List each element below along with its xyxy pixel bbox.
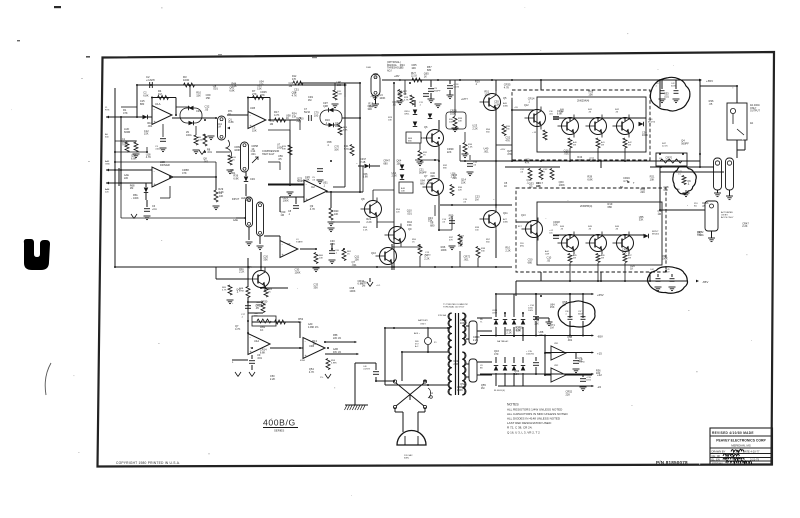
svg-text:680: 680 — [608, 205, 613, 209]
svg-text:47K: 47K — [505, 138, 510, 142]
svg-text:15K: 15K — [196, 93, 201, 97]
svg-text:+15: +15 — [597, 352, 602, 356]
svg-text:.001: .001 — [567, 338, 573, 342]
svg-text:4.7K: 4.7K — [310, 207, 316, 211]
svg-text:COPYRIGHT 1980 PRINTED IN: COPYRIGHT 1980 PRINTED IN U.S.A. — [116, 461, 180, 465]
svg-text:2.2K: 2.2K — [506, 331, 512, 335]
svg-text:1K: 1K — [251, 147, 254, 151]
svg-text:15K: 15K — [461, 180, 466, 184]
svg-text:4.7K: 4.7K — [623, 179, 629, 183]
svg-text:2N6254(4): 2N6254(4) — [577, 99, 589, 103]
svg-text:680: 680 — [140, 102, 145, 106]
svg-text:R 72, C 38, CR 24,: R 72, C 38, CR 24, — [507, 426, 533, 430]
svg-text:22K: 22K — [335, 124, 340, 128]
svg-text:DIV 1%: DIV 1% — [333, 351, 342, 354]
svg-text:5W: 5W — [573, 144, 576, 146]
svg-text:1K: 1K — [424, 74, 427, 78]
svg-text:220 1%: 220 1% — [333, 337, 342, 340]
svg-text:DATE 4-20-77: DATE 4-20-77 — [743, 450, 760, 454]
svg-text:TOROIDAL 120 VOLT: TOROIDAL 120 VOLT — [443, 306, 465, 309]
svg-text:AU: AU — [105, 133, 108, 136]
svg-text:TANT: TANT — [122, 144, 129, 147]
svg-text:100K: 100K — [662, 257, 668, 261]
svg-text:GND: GND — [105, 164, 110, 166]
svg-text:2.2K: 2.2K — [505, 249, 511, 253]
svg-text:10K: 10K — [219, 195, 224, 198]
svg-text:.05: .05 — [400, 66, 404, 70]
svg-text:OUTPUT: OUTPUT — [750, 110, 760, 113]
svg-text:1M: 1M — [562, 303, 566, 307]
svg-text:2.2K: 2.2K — [391, 174, 397, 178]
svg-text:+LPT7: +LPT7 — [461, 99, 469, 101]
svg-text:REVISED 4/10/80 MADE: REVISED 4/10/80 MADE — [712, 431, 754, 435]
svg-text:+CA: +CA — [152, 208, 157, 211]
svg-text:47K: 47K — [449, 240, 453, 242]
svg-text:CH. CK: CH. CK — [712, 454, 721, 458]
svg-text:4080: 4080 — [503, 222, 509, 224]
svg-text:10/25: 10/25 — [586, 379, 592, 381]
svg-text:15K: 15K — [588, 92, 593, 96]
svg-text:22.1K: 22.1K — [411, 76, 417, 78]
svg-text:.05: .05 — [278, 157, 282, 161]
svg-text:4.99K 1%: 4.99K 1% — [308, 326, 319, 329]
svg-text:2.2K: 2.2K — [473, 338, 479, 342]
svg-text:10K: 10K — [334, 147, 339, 151]
svg-text:CR4: CR4 — [250, 178, 255, 181]
svg-text:10K: 10K — [514, 372, 519, 376]
svg-text:15K: 15K — [550, 305, 555, 309]
svg-text:4.7K: 4.7K — [330, 242, 336, 246]
svg-text:1M: 1M — [481, 386, 485, 390]
svg-text:1M: 1M — [550, 326, 554, 330]
svg-text:100K: 100K — [277, 146, 283, 150]
svg-text:100A: 100A — [186, 134, 192, 137]
svg-text:1000: 1000 — [183, 78, 190, 82]
svg-text:2.2K: 2.2K — [246, 198, 252, 202]
svg-text:4Ω: 4Ω — [750, 122, 753, 125]
svg-text:22K: 22K — [452, 176, 457, 180]
svg-text:LAST REF DESIGNATOR USED:: LAST REF DESIGNATOR USED: — [507, 421, 552, 425]
svg-text:.001: .001 — [251, 152, 257, 156]
svg-text:4.99K: 4.99K — [331, 363, 337, 365]
svg-text:IN 4003 (4): IN 4003 (4) — [494, 390, 505, 392]
svg-text:47K: 47K — [525, 161, 530, 165]
svg-text:(R6): (R6) — [520, 245, 524, 247]
svg-text:.05: .05 — [312, 342, 316, 346]
svg-text:100: 100 — [397, 93, 402, 97]
svg-text:50/16: 50/16 — [304, 111, 311, 114]
svg-text:ACTIVATED: ACTIVATED — [721, 211, 733, 214]
svg-text:.001: .001 — [147, 124, 153, 128]
svg-text:.05: .05 — [702, 204, 706, 208]
svg-text:10K: 10K — [553, 223, 558, 227]
svg-text:1M: 1M — [158, 92, 162, 96]
svg-text:680: 680 — [528, 260, 533, 264]
svg-text:4.7K: 4.7K — [274, 113, 280, 117]
svg-text:-65V: -65V — [702, 280, 708, 284]
svg-text:U3: U3 — [287, 242, 291, 246]
svg-text:1M: 1M — [459, 237, 463, 241]
svg-text:ALL RESISTORS 1/4W UNLESS NOT: ALL RESISTORS 1/4W UNLESS NOTED — [507, 407, 563, 411]
svg-text:15K: 15K — [257, 87, 262, 91]
svg-text:4.7K: 4.7K — [146, 155, 152, 159]
svg-text:.001: .001 — [407, 212, 413, 216]
svg-text:47K: 47K — [182, 171, 187, 175]
svg-text:+65V: +65V — [706, 79, 713, 83]
svg-text:+28V: +28V — [394, 76, 400, 78]
svg-text:APPR BY: APPR BY — [712, 461, 724, 465]
svg-text:5W: 5W — [601, 144, 604, 146]
svg-text:47K: 47K — [507, 152, 512, 156]
svg-text:33K: 33K — [263, 257, 268, 261]
svg-text:33K: 33K — [536, 184, 541, 188]
svg-text:27K: 27K — [252, 92, 257, 96]
svg-text:.05: .05 — [546, 258, 550, 262]
svg-text:Q7: Q7 — [424, 174, 428, 178]
svg-text:MERIDIAN, MS: MERIDIAN, MS — [731, 444, 751, 448]
svg-text:22K: 22K — [427, 181, 432, 185]
svg-text:100K: 100K — [133, 197, 139, 200]
svg-text:33K: 33K — [305, 178, 310, 182]
svg-text:6.8K: 6.8K — [143, 94, 149, 98]
svg-text:220K: 220K — [198, 140, 204, 142]
svg-text:SERIES: SERIES — [274, 429, 284, 433]
svg-text:33K: 33K — [430, 174, 435, 178]
svg-text:4558: 4558 — [300, 360, 306, 362]
svg-text:22.1K: 22.1K — [662, 146, 668, 148]
svg-text:10W: 10W — [545, 253, 549, 255]
svg-text:5W: 5W — [601, 257, 604, 259]
svg-text:.01/35: .01/35 — [453, 87, 460, 89]
svg-text:100: 100 — [314, 113, 319, 117]
svg-text:.01/1KV: .01/1KV — [363, 368, 371, 370]
svg-text:2.2K: 2.2K — [494, 102, 500, 106]
svg-text:400B/G: 400B/G — [263, 418, 296, 428]
svg-text:.05: .05 — [255, 306, 259, 310]
svg-text:Q9: Q9 — [408, 227, 412, 231]
svg-text:47K: 47K — [123, 111, 128, 115]
svg-text:470: 470 — [449, 216, 454, 220]
svg-text:6.8K: 6.8K — [131, 156, 137, 160]
svg-text:4.7K: 4.7K — [218, 190, 224, 194]
svg-text:Q12: Q12 — [524, 104, 529, 107]
svg-text:33K: 33K — [458, 244, 463, 248]
svg-text:1000/50: 1000/50 — [526, 354, 535, 356]
svg-text:1M: 1M — [130, 186, 134, 190]
svg-text:.0012: .0012 — [155, 149, 161, 151]
svg-text:15K: 15K — [252, 129, 257, 133]
svg-text:680: 680 — [430, 224, 435, 228]
svg-text:1M: 1M — [308, 98, 312, 102]
svg-text:120 VAC: 120 VAC — [404, 454, 413, 457]
svg-text:100K: 100K — [559, 183, 565, 187]
svg-text:ACCS ONLY: ACCS ONLY — [721, 216, 734, 219]
svg-text:47K: 47K — [260, 93, 265, 97]
svg-text:22K: 22K — [565, 393, 570, 397]
svg-text:470: 470 — [494, 352, 499, 356]
svg-text:47K: 47K — [622, 251, 627, 255]
svg-text:.05: .05 — [205, 107, 209, 111]
svg-text:.05: .05 — [392, 103, 396, 107]
svg-text:6.8K: 6.8K — [587, 177, 593, 181]
svg-text:10K: 10K — [458, 121, 462, 123]
svg-text:4.7K: 4.7K — [309, 370, 315, 374]
svg-text:.1: .1 — [565, 313, 567, 315]
svg-text:AAE: AAE — [105, 188, 110, 191]
svg-text:10K: 10K — [388, 120, 392, 122]
svg-text:NOTES: NOTES — [507, 403, 519, 407]
svg-text:1M: 1M — [475, 198, 479, 202]
svg-text:1M: 1M — [289, 84, 293, 88]
svg-text:33K: 33K — [639, 218, 644, 222]
svg-text:.05: .05 — [709, 102, 713, 106]
svg-text:47K: 47K — [292, 78, 297, 81]
svg-text:1M: 1M — [217, 125, 221, 129]
svg-text:EL. EN: EL. EN — [712, 458, 720, 462]
svg-text:.001: .001 — [564, 151, 570, 155]
svg-text:1K: 1K — [504, 184, 507, 188]
svg-text:CR8: CR8 — [323, 105, 328, 108]
svg-text:15K: 15K — [407, 223, 412, 227]
svg-text:Q8: Q8 — [361, 197, 365, 201]
svg-text:2.2K: 2.2K — [424, 256, 430, 260]
svg-text:INPUT: INPUT — [232, 198, 240, 201]
svg-text:.001: .001 — [257, 356, 263, 360]
svg-text:4080: 4080 — [503, 106, 509, 108]
svg-text:680: 680 — [383, 161, 388, 165]
svg-text:ONLY: ONLY — [420, 324, 426, 326]
svg-text:6.8K: 6.8K — [260, 351, 266, 355]
svg-text:2.2K: 2.2K — [453, 362, 459, 366]
svg-text:U4A: U4A — [254, 339, 259, 343]
svg-text:+65V: +65V — [500, 149, 506, 151]
svg-text:.05: .05 — [529, 184, 533, 188]
svg-text:Q 16, U 3, L 3, VR 2, T 2: Q 16, U 3, L 3, VR 2, T 2 — [507, 430, 540, 434]
svg-text:5W: 5W — [628, 257, 631, 259]
svg-text:10K: 10K — [650, 177, 655, 181]
svg-text:DRIVER: DRIVER — [160, 163, 170, 167]
svg-text:ALL CAPACITORS IN MFD UNLESS: ALL CAPACITORS IN MFD UNLESS NOTED — [507, 412, 568, 416]
svg-text:100K: 100K — [294, 271, 300, 275]
svg-text:IN4720: IN4720 — [648, 122, 656, 124]
svg-text:.05: .05 — [373, 75, 377, 79]
svg-text:10K: 10K — [334, 213, 339, 216]
svg-text:33K: 33K — [428, 219, 433, 223]
svg-text:Q13: Q13 — [521, 214, 526, 217]
svg-text:RUT: RUT — [411, 73, 416, 75]
svg-text:S?B 30A: S?B 30A — [438, 314, 447, 317]
svg-text:100K: 100K — [484, 92, 490, 96]
svg-text:600R: 600R — [124, 130, 130, 134]
svg-text:RTS: RTS — [105, 110, 110, 112]
svg-text:Q10: Q10 — [371, 251, 376, 255]
svg-text:15K: 15K — [354, 257, 359, 261]
svg-text:STATE: STATE — [296, 241, 303, 244]
svg-text:-22: -22 — [597, 385, 601, 389]
svg-text:10K: 10K — [577, 158, 582, 162]
svg-text:ADJ: ADJ — [387, 70, 392, 73]
svg-text:560PF: 560PF — [419, 171, 427, 175]
svg-text:100K: 100K — [457, 388, 463, 392]
svg-text:.001: .001 — [352, 263, 358, 267]
svg-text:AAE: AAE — [233, 219, 238, 222]
svg-text:6.8K: 6.8K — [228, 120, 234, 124]
svg-text:.001: .001 — [484, 150, 490, 154]
svg-text:4.7K: 4.7K — [235, 327, 241, 331]
svg-text:5W: 5W — [628, 144, 631, 146]
svg-text:1M: 1M — [280, 213, 284, 217]
svg-text:6.8K: 6.8K — [358, 282, 364, 286]
svg-text:100K: 100K — [337, 94, 343, 96]
svg-text:10K: 10K — [319, 258, 323, 260]
svg-text:.001: .001 — [664, 95, 670, 99]
svg-text:100K: 100K — [441, 248, 447, 252]
svg-text:.001: .001 — [577, 359, 583, 363]
svg-text:15K: 15K — [206, 96, 211, 100]
svg-text:P/N 81850078: P/N 81850078 — [656, 460, 688, 465]
svg-text:2.2K: 2.2K — [239, 270, 245, 274]
svg-text:AAF: AAF — [105, 160, 110, 163]
svg-text:100K: 100K — [349, 289, 355, 293]
svg-text:PEAVEY ELECTRONICS CORP: PEAVEY ELECTRONICS CORP — [716, 439, 766, 443]
svg-text:Q11: Q11 — [503, 211, 508, 215]
svg-text:1M: 1M — [270, 122, 274, 126]
svg-text:.001: .001 — [539, 333, 545, 337]
svg-text:560PF: 560PF — [681, 141, 689, 145]
svg-text:Q5: Q5 — [503, 96, 507, 100]
svg-text:5W: 5W — [573, 257, 576, 259]
svg-text:33K: 33K — [313, 285, 318, 289]
svg-text:1M: 1M — [657, 212, 661, 216]
svg-text:2.2K: 2.2K — [472, 127, 478, 131]
svg-text:4.7K: 4.7K — [589, 159, 595, 163]
svg-text:15K: 15K — [396, 162, 401, 166]
svg-text:6.8K: 6.8K — [233, 176, 239, 180]
svg-text:2.2K: 2.2K — [231, 84, 237, 88]
svg-text:2.4K: 2.4K — [468, 147, 473, 149]
svg-text:100: 100 — [596, 371, 601, 375]
svg-text:100K: 100K — [379, 96, 385, 100]
svg-text:CR1: CR1 — [196, 110, 201, 113]
svg-text:-65V: -65V — [597, 335, 603, 339]
svg-text:CR11: CR11 — [404, 114, 410, 116]
svg-text:100V: 100V — [528, 310, 534, 312]
svg-text:6.8K: 6.8K — [343, 130, 348, 132]
svg-text:2.2K: 2.2K — [363, 230, 368, 232]
svg-text:1K: 1K — [286, 116, 289, 120]
svg-text:4.7K: 4.7K — [504, 85, 510, 89]
svg-text:2.2K: 2.2K — [742, 224, 748, 228]
svg-text:6.8K: 6.8K — [229, 88, 235, 92]
svg-text:1%: 1% — [320, 377, 323, 379]
svg-text:IN5402: IN5402 — [652, 234, 660, 236]
svg-text:.001: .001 — [463, 257, 469, 261]
svg-text:10K: 10K — [411, 66, 416, 70]
svg-text:100K: 100K — [665, 158, 671, 162]
svg-text:100K: 100K — [642, 133, 648, 137]
svg-text:CR19: CR19 — [492, 312, 498, 314]
svg-text:.001: .001 — [207, 150, 213, 154]
svg-text:DRAWN BY: DRAWN BY — [712, 450, 726, 454]
svg-text:.001: .001 — [203, 159, 209, 163]
svg-text:560PF: 560PF — [434, 91, 441, 93]
svg-text:100K: 100K — [283, 199, 289, 203]
svg-text:HIGH SALT: HIGH SALT — [262, 153, 275, 156]
svg-text:22K: 22K — [447, 150, 452, 154]
svg-text:Q6: Q6 — [424, 125, 428, 129]
svg-text:100K: 100K — [450, 111, 456, 115]
svg-text:33K: 33K — [367, 107, 372, 111]
svg-text:560PF: 560PF — [297, 179, 305, 183]
svg-text:U2: U2 — [311, 185, 315, 189]
svg-text:6.8K: 6.8K — [363, 175, 369, 179]
svg-text:1K: 1K — [260, 328, 263, 332]
svg-text:8Ω: 8Ω — [620, 186, 623, 189]
svg-text:+CAPF: +CAPF — [146, 78, 155, 82]
svg-text:U1A: U1A — [155, 102, 161, 106]
svg-text:680: 680 — [337, 83, 342, 87]
svg-text:2.2K: 2.2K — [366, 220, 372, 224]
svg-text:2.2K: 2.2K — [270, 377, 276, 381]
svg-text:4.7K: 4.7K — [404, 100, 409, 102]
svg-text:4.7K: 4.7K — [222, 290, 227, 292]
svg-text:1K: 1K — [298, 320, 301, 324]
svg-text:100K: 100K — [234, 148, 240, 152]
svg-text:BATTERY: BATTERY — [418, 319, 428, 322]
svg-text:+65V: +65V — [597, 293, 604, 297]
svg-text:10K: 10K — [460, 321, 465, 325]
svg-text:AV8 +: AV8 + — [414, 332, 421, 335]
svg-text:15K: 15K — [534, 322, 539, 326]
svg-text:4.7K: 4.7K — [515, 328, 521, 332]
svg-text:P-1B: P-1B — [360, 161, 366, 164]
svg-text:680: 680 — [420, 182, 425, 186]
svg-text:10K: 10K — [401, 191, 405, 193]
svg-text:22K: 22K — [640, 190, 645, 194]
svg-text:2N6055(4): 2N6055(4) — [580, 204, 592, 208]
svg-text:.001: .001 — [213, 87, 219, 91]
svg-text:6.8K: 6.8K — [557, 112, 563, 116]
svg-text:A-C: A-C — [415, 345, 419, 348]
svg-text:1K: 1K — [630, 267, 633, 271]
svg-text:600V: 600V — [578, 313, 583, 315]
svg-text:680: 680 — [697, 233, 702, 237]
svg-text:NA TRE AC: NA TRE AC — [497, 340, 509, 343]
svg-text:220: 220 — [124, 177, 129, 180]
svg-text:ALL DIODES IN 4148 UNLESS NOT: ALL DIODES IN 4148 UNLESS NOTED — [507, 417, 561, 421]
svg-text:60Hz: 60Hz — [404, 458, 409, 460]
svg-text:100K: 100K — [366, 67, 372, 69]
svg-text:U1B: U1B — [250, 106, 255, 110]
svg-text:680: 680 — [664, 188, 669, 192]
svg-text:2-21-79: 2-21-79 — [750, 458, 759, 462]
svg-text:22K: 22K — [458, 190, 462, 192]
